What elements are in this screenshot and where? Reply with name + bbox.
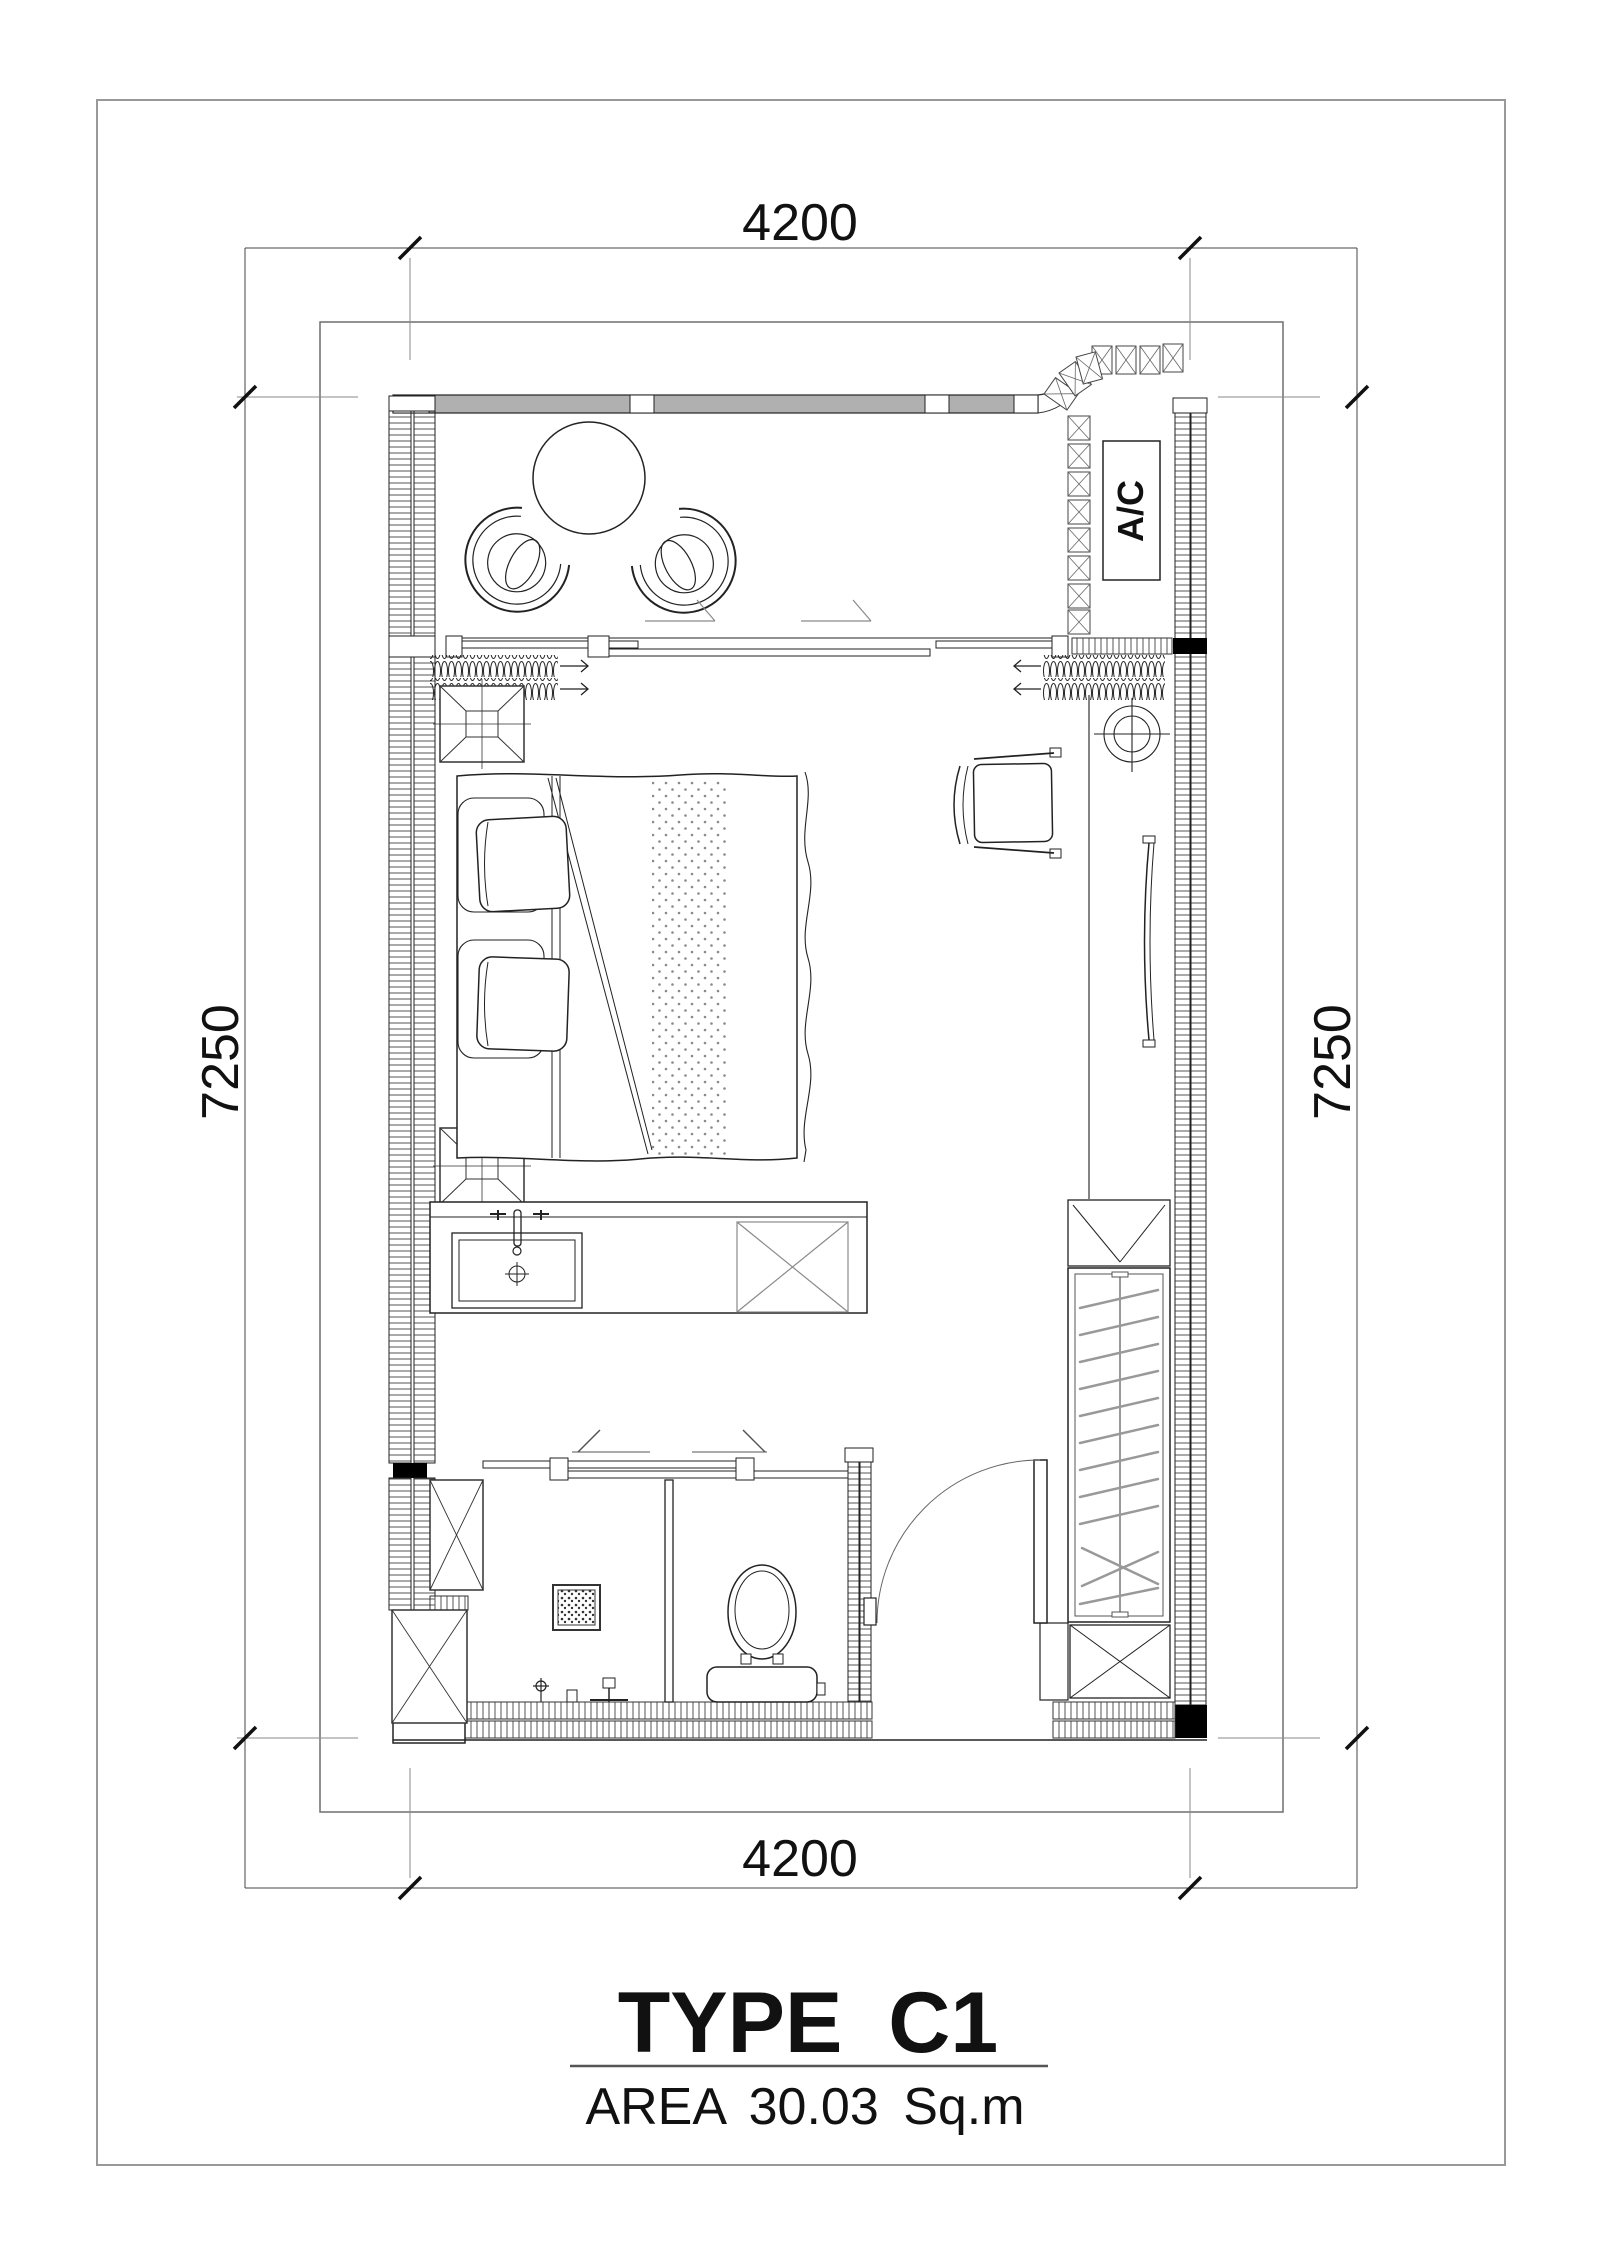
bed <box>457 772 811 1162</box>
column <box>393 1463 427 1478</box>
ceiling-light <box>1094 698 1170 772</box>
vanity <box>430 1202 867 1313</box>
bedroom <box>433 679 1170 1211</box>
door-leaf <box>1034 1460 1047 1623</box>
balcony-chair-right <box>622 497 757 634</box>
glass-partition <box>483 1458 848 1480</box>
curtains <box>430 655 1165 700</box>
bathroom-corridor-wall <box>845 1448 873 1702</box>
door-direction-marks <box>572 1430 767 1452</box>
door-jamb <box>1040 1623 1068 1700</box>
balcony <box>444 422 871 634</box>
pillow <box>476 816 571 913</box>
floor-plan-svg: 4200 4200 7250 7250 <box>0 0 1600 2263</box>
dim-top: 4200 <box>742 194 858 252</box>
pillow <box>476 956 569 1051</box>
right-wall <box>1173 398 1207 1738</box>
divider-wall <box>665 1480 673 1702</box>
blanket-edge <box>804 772 811 1162</box>
left-wall <box>389 396 435 1610</box>
drawing-sheet: 4200 4200 7250 7250 <box>0 0 1600 2263</box>
curtain-coil <box>1043 678 1165 700</box>
ac-niche: A/C <box>1038 344 1183 634</box>
dim-right: 7250 <box>1304 1004 1362 1120</box>
sliding-door <box>446 636 1068 657</box>
title-block: TYPE C1 AREA 30.03 Sq.m <box>570 1975 1048 2136</box>
curtain-arrows <box>560 660 1041 695</box>
round-table <box>533 422 645 534</box>
shoe-box <box>1070 1625 1170 1698</box>
column <box>1175 1705 1207 1738</box>
column <box>1173 638 1207 654</box>
door-swing-arc <box>877 1460 1040 1623</box>
armchair <box>954 748 1061 858</box>
toilet <box>707 1565 825 1702</box>
door-stop <box>864 1598 876 1625</box>
shower-fittings <box>533 1678 628 1702</box>
bed-runner <box>652 778 726 1156</box>
curtain-coil <box>1043 655 1165 677</box>
tv <box>1143 836 1155 1047</box>
dim-left: 7250 <box>192 1004 250 1120</box>
ac-label: A/C <box>1110 480 1151 542</box>
entrance-door <box>864 1460 1068 1700</box>
slide-marks <box>645 600 871 621</box>
shower-drain <box>553 1585 600 1630</box>
dim-bottom: 4200 <box>742 1830 858 1888</box>
wardrobe <box>1068 1200 1170 1698</box>
ac-sill <box>1072 638 1172 654</box>
curtain-coil <box>430 655 558 677</box>
plan-title: TYPE C1 <box>618 1975 998 2071</box>
nightstand-top <box>433 679 531 769</box>
plan-area: AREA 30.03 Sq.m <box>585 2078 1024 2136</box>
bottom-wall <box>393 1702 1207 1743</box>
bathroom <box>392 1430 848 1723</box>
bench <box>1068 1200 1170 1266</box>
